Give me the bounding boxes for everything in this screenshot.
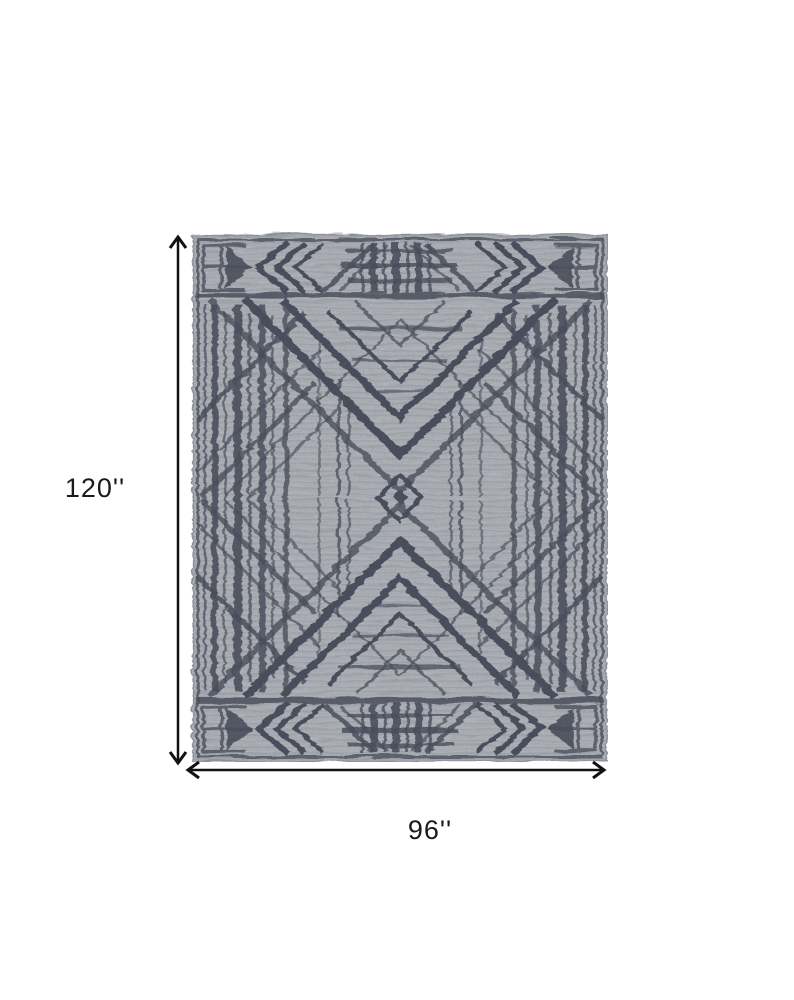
product-dimension-figure: 120'' 96'' [0,0,794,1000]
rug-image [189,231,608,762]
rug-graphic [189,231,608,762]
height-dimension-label: 120'' [40,473,150,504]
width-dimension-label: 96'' [375,815,485,846]
